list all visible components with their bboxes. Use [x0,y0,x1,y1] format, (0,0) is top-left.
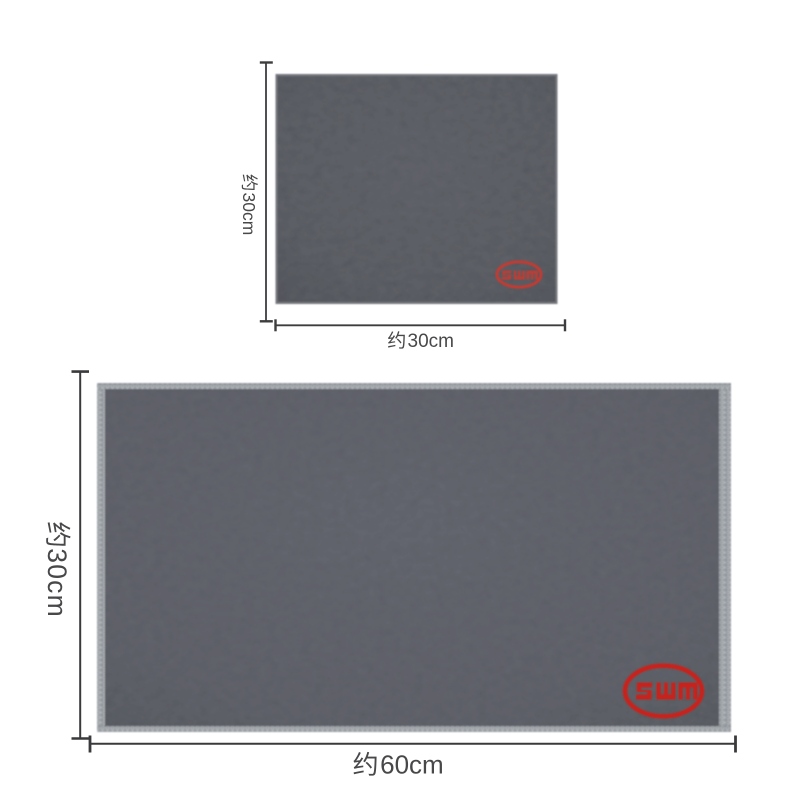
svg-text:30cm: 30cm [408,331,454,352]
svg-text:60cm: 60cm [380,750,444,780]
svg-text:30cm: 30cm [42,548,72,618]
svg-text:30cm: 30cm [239,193,259,236]
